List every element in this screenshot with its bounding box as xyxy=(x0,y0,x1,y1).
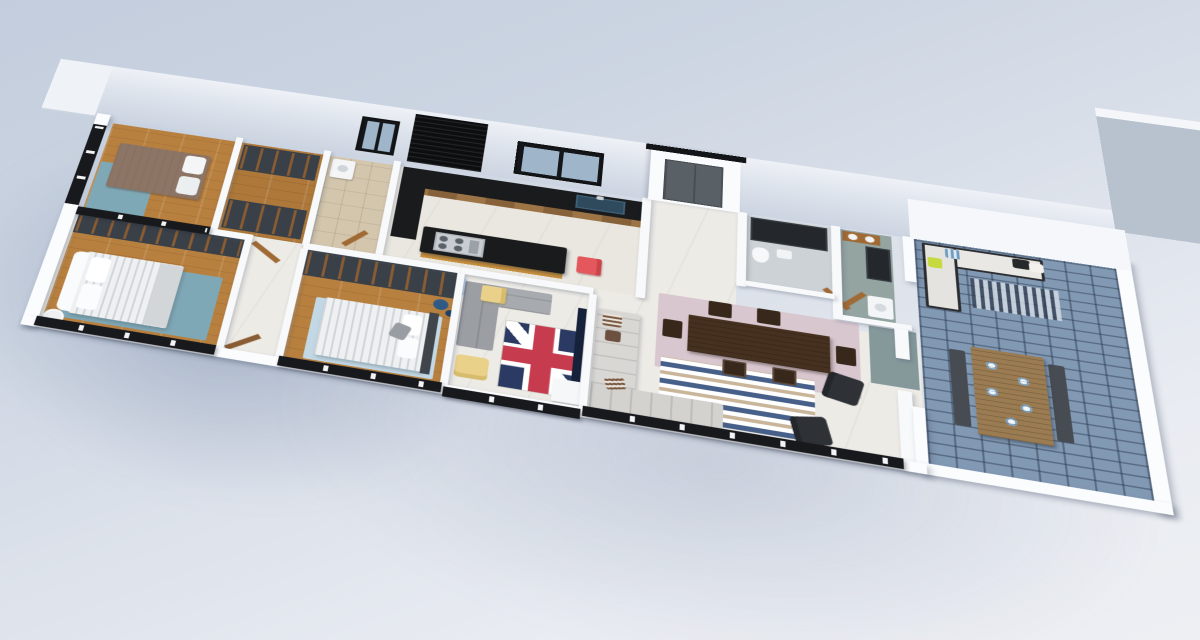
living-striped-pillow-2 xyxy=(604,378,627,390)
living-brown-pillow xyxy=(605,329,621,342)
terrace-table xyxy=(971,347,1055,447)
back-window-small xyxy=(355,116,400,156)
lime-pillow xyxy=(927,257,942,269)
wall-living-terrace-north xyxy=(894,328,910,360)
bath2-shower xyxy=(865,246,891,282)
entrance-door xyxy=(663,159,724,208)
wall-entrance-bath1 xyxy=(736,211,747,286)
tv-white-cabinet xyxy=(551,378,581,405)
dining-chair-5 xyxy=(662,318,682,338)
bath2-appliance xyxy=(867,295,893,320)
floorplan-render-scene xyxy=(0,0,1200,640)
washing-machine xyxy=(329,158,356,180)
dining-chair-6 xyxy=(836,346,857,367)
